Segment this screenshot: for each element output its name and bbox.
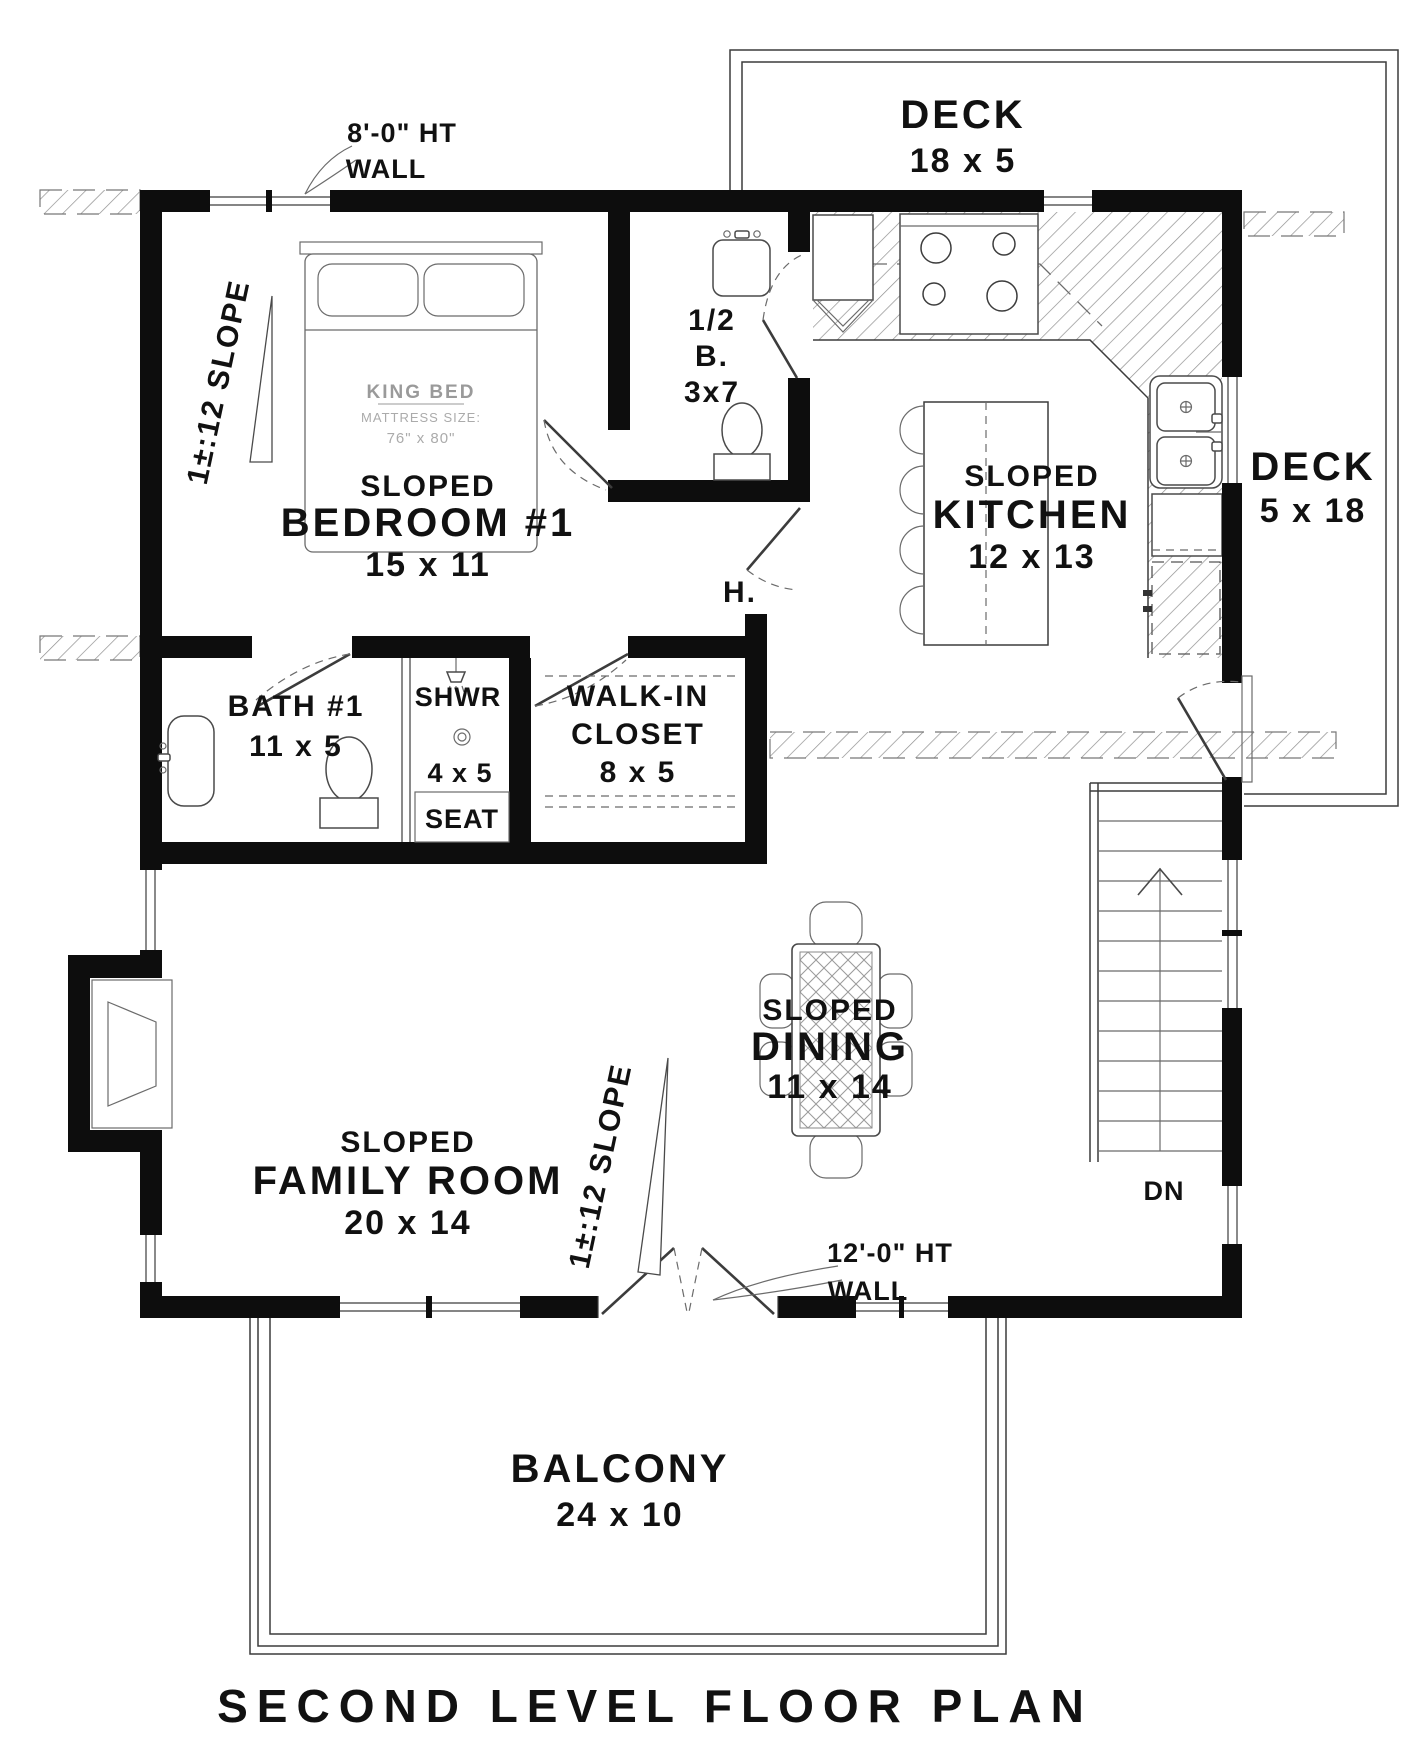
sheet-title: SECOND LEVEL FLOOR PLAN [217, 1680, 1093, 1732]
shower-dims: 4 x 5 [427, 758, 492, 788]
closet-line2: CLOSET [571, 718, 705, 751]
balcony-label: BALCONY [511, 1447, 730, 1491]
cut-band-top-right [1244, 212, 1344, 236]
kitchen-slope-label: SLOPED [964, 460, 1099, 493]
family-room-slope-label: SLOPED [340, 1126, 475, 1159]
bedroom-dims: 15 x 11 [365, 546, 491, 584]
half-bath-toilet [714, 403, 770, 480]
cut-band-top-left [40, 190, 140, 214]
shower-partition [402, 658, 410, 842]
cut-band-mid-right [770, 732, 1336, 758]
bed-label: KING BED [367, 382, 476, 403]
wall-8ft-line1: 8'-0" HT [347, 118, 457, 148]
wall-8ft-line2: WALL [346, 154, 426, 184]
floor-plan-sheet: KING BED MATTRESS SIZE: 76" x 80" [0, 0, 1422, 1758]
wall-12ft-annotation: 12'-0" HT WALL [713, 1238, 953, 1306]
family-room-dims: 20 x 14 [344, 1204, 471, 1242]
deck-top-label: DECK [900, 93, 1025, 137]
half-bath-line1: 1/2 [688, 304, 736, 337]
dining-label: DINING [751, 1025, 909, 1069]
staircase: DN [1090, 783, 1222, 1206]
half-bath-line2: B. [695, 340, 729, 373]
bed-size-label: 76" x 80" [387, 430, 456, 447]
bed-sub-label: MATTRESS SIZE: [361, 410, 481, 425]
deck-top-dims: 18 x 5 [910, 142, 1017, 180]
half-bath-door-leaf [763, 320, 797, 378]
bedroom-label: BEDROOM #1 [281, 501, 576, 545]
hall-label: H. [723, 576, 757, 609]
dishwasher [1152, 494, 1222, 556]
deck-right-label: DECK [1250, 445, 1375, 489]
slope-label-family-room: 1±:12 SLOPE [563, 1061, 639, 1272]
slope-label-bedroom: 1±:12 SLOPE [181, 277, 257, 488]
base-cabinet [1143, 562, 1220, 654]
shower-label: SHWR [415, 682, 502, 712]
dining-slope-label: SLOPED [762, 994, 897, 1027]
floor-plan-drawing: KING BED MATTRESS SIZE: 76" x 80" [0, 0, 1422, 1758]
cut-band-mid-left [40, 636, 140, 660]
closet-dims: 8 x 5 [600, 756, 677, 789]
slope-marker-bedroom: 1±:12 SLOPE [181, 277, 272, 488]
stairs-down-label: DN [1144, 1176, 1185, 1206]
bath1-sink [158, 716, 214, 806]
kitchen-dims: 12 x 13 [968, 538, 1095, 576]
shower-seat-label: SEAT [425, 804, 499, 834]
deck-rails [730, 50, 1398, 806]
shower-drain [454, 729, 470, 745]
half-bath-dims: 3x7 [684, 376, 740, 409]
wall-12ft-line2: WALL [828, 1276, 908, 1306]
bath1-label: BATH #1 [228, 690, 365, 723]
wall-8ft-annotation: 8'-0" HT WALL [305, 118, 457, 194]
hall-door-leaf [747, 508, 800, 570]
stove [900, 214, 1038, 334]
half-bath-sink [713, 231, 770, 296]
family-room-label: FAMILY ROOM [253, 1159, 564, 1203]
closet-line1: WALK-IN [567, 680, 709, 713]
kitchen-label: KITCHEN [933, 493, 1132, 537]
wall-12ft-line1: 12'-0" HT [827, 1238, 953, 1268]
slope-marker-family-room: 1±:12 SLOPE [563, 1058, 668, 1275]
bedroom-door-leaf [544, 420, 612, 488]
balcony-french-doors [598, 1248, 778, 1318]
deck-right-dims: 5 x 18 [1260, 492, 1367, 530]
dining-dims: 11 x 14 [767, 1068, 893, 1106]
balcony-dims: 24 x 10 [556, 1496, 683, 1534]
kitchen-sink [1150, 376, 1222, 488]
fireplace [68, 955, 172, 1152]
bedroom-slope-label: SLOPED [360, 470, 495, 503]
bath1-dims: 11 x 5 [249, 730, 343, 763]
